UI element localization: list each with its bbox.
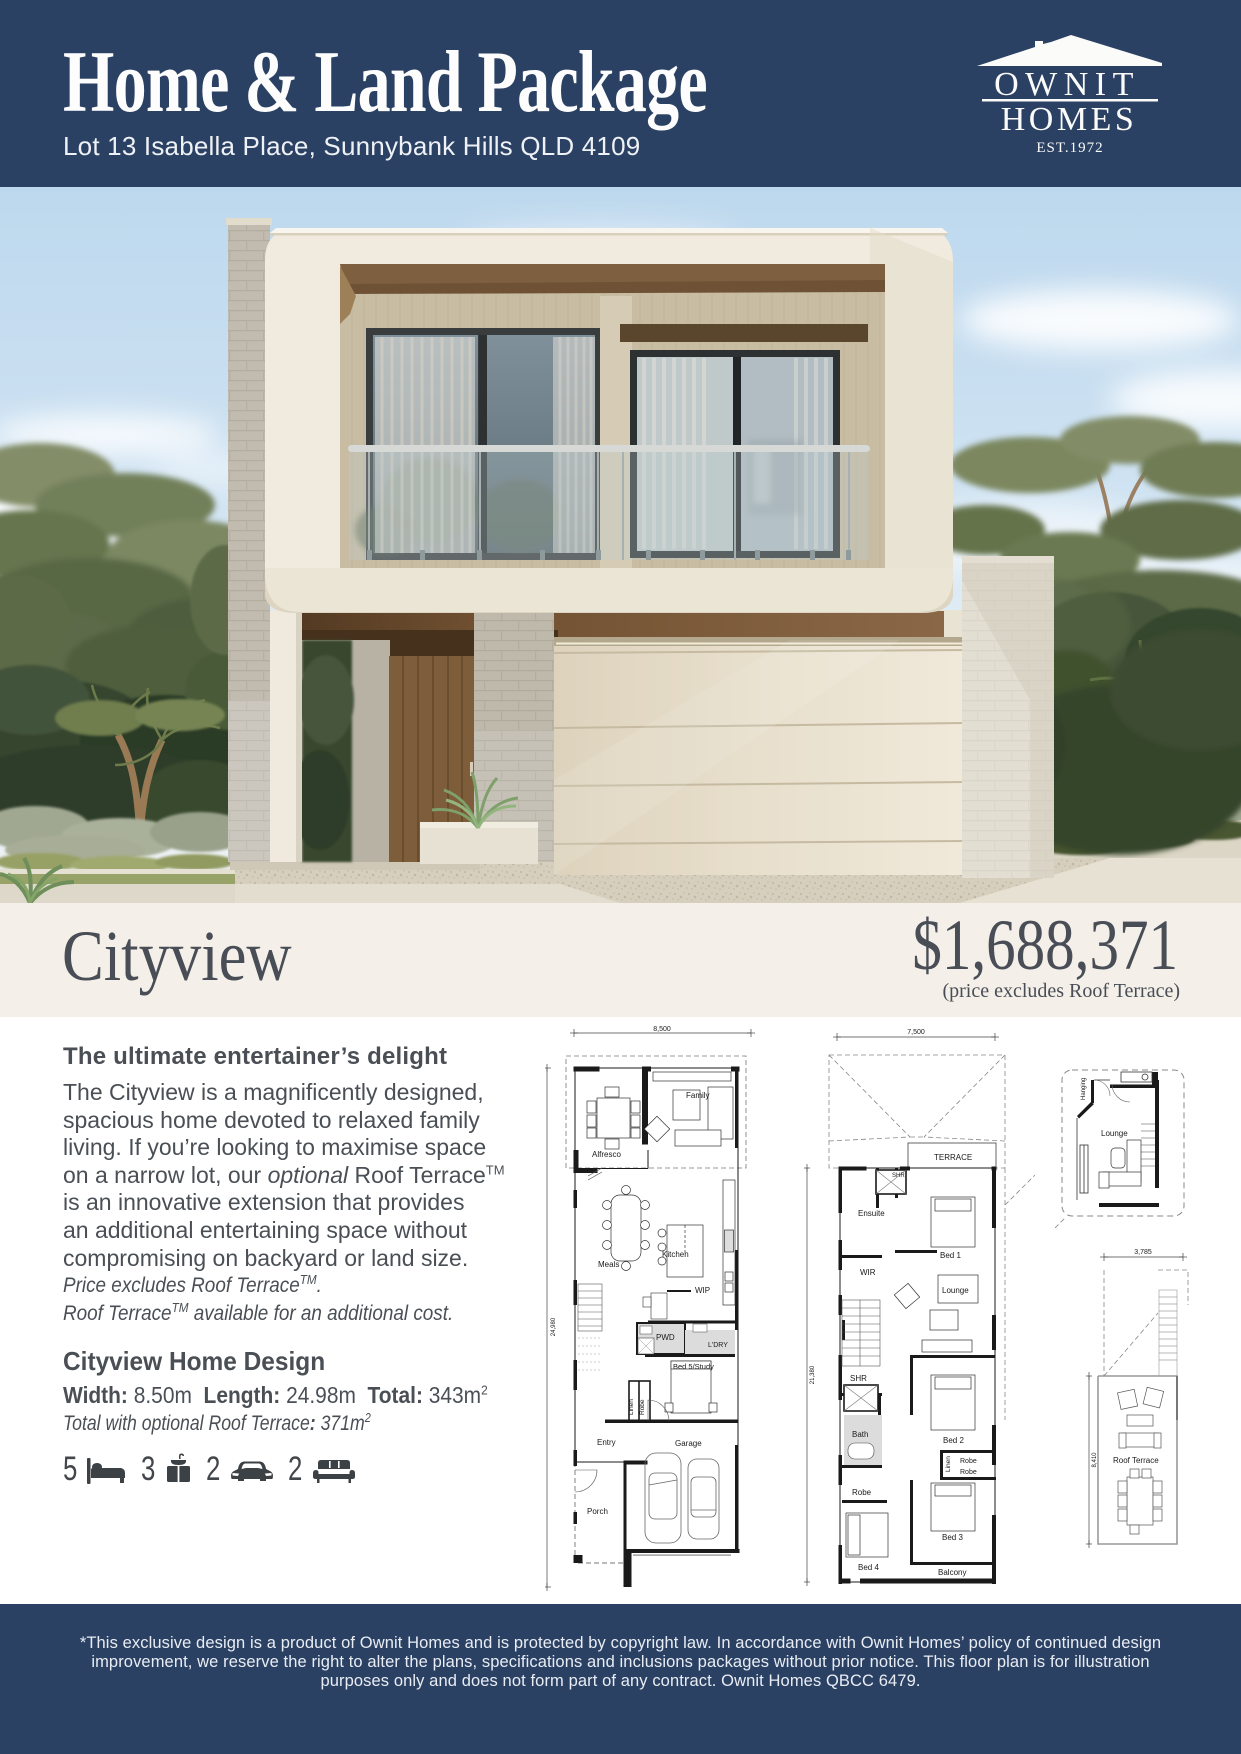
- svg-text:21,380: 21,380: [810, 1365, 816, 1384]
- svg-text:24,980: 24,980: [551, 1317, 557, 1336]
- svg-text:Linen: Linen: [628, 1399, 635, 1415]
- svg-text:Robe: Robe: [960, 1458, 977, 1465]
- svg-text:HOMES: HOMES: [1001, 101, 1138, 138]
- svg-text:8,410: 8,410: [1092, 1452, 1098, 1468]
- svg-text:OWNIT: OWNIT: [994, 66, 1140, 103]
- svg-text:Bath: Bath: [852, 1430, 868, 1439]
- svg-text:Robe: Robe: [639, 1399, 646, 1415]
- svg-text:L'DRY: L'DRY: [708, 1342, 728, 1349]
- svg-text:TERRACE: TERRACE: [934, 1153, 972, 1162]
- svg-text:WIR: WIR: [860, 1268, 876, 1277]
- svg-text:Kitchen: Kitchen: [662, 1250, 689, 1259]
- svg-text:3,785: 3,785: [1134, 1249, 1152, 1256]
- svg-text:EST.1972: EST.1972: [1036, 140, 1103, 156]
- svg-text:Linen: Linen: [945, 1456, 952, 1472]
- svg-text:Ensuite: Ensuite: [858, 1209, 885, 1218]
- svg-text:Family: Family: [686, 1091, 710, 1100]
- svg-text:Porch: Porch: [587, 1507, 608, 1516]
- svg-text:Alfresco: Alfresco: [592, 1150, 621, 1159]
- svg-text:Roof Terrace: Roof Terrace: [1113, 1456, 1159, 1465]
- svg-text:Robe: Robe: [960, 1469, 977, 1476]
- svg-text:Robe: Robe: [852, 1488, 872, 1497]
- svg-text:Bed 3: Bed 3: [942, 1533, 963, 1542]
- svg-text:Hanging: Hanging: [1081, 1078, 1087, 1100]
- svg-text:Bed 1: Bed 1: [940, 1251, 961, 1260]
- svg-text:Meals: Meals: [598, 1260, 619, 1269]
- svg-text:8,500: 8,500: [653, 1026, 671, 1033]
- svg-text:SHR: SHR: [892, 1173, 905, 1179]
- svg-text:Bed 5/Study: Bed 5/Study: [673, 1362, 714, 1371]
- svg-text:Garage: Garage: [675, 1439, 702, 1448]
- svg-text:Lounge: Lounge: [942, 1286, 969, 1295]
- svg-text:Bed 4: Bed 4: [858, 1563, 879, 1572]
- svg-text:SHR: SHR: [850, 1374, 867, 1383]
- svg-text:7,500: 7,500: [907, 1029, 925, 1036]
- svg-text:Entry: Entry: [597, 1438, 616, 1447]
- svg-text:PWD: PWD: [656, 1333, 675, 1342]
- svg-text:WIP: WIP: [695, 1286, 710, 1295]
- svg-text:Balcony: Balcony: [938, 1568, 966, 1577]
- svg-text:Bed 2: Bed 2: [943, 1436, 964, 1445]
- svg-text:Lounge: Lounge: [1101, 1129, 1128, 1138]
